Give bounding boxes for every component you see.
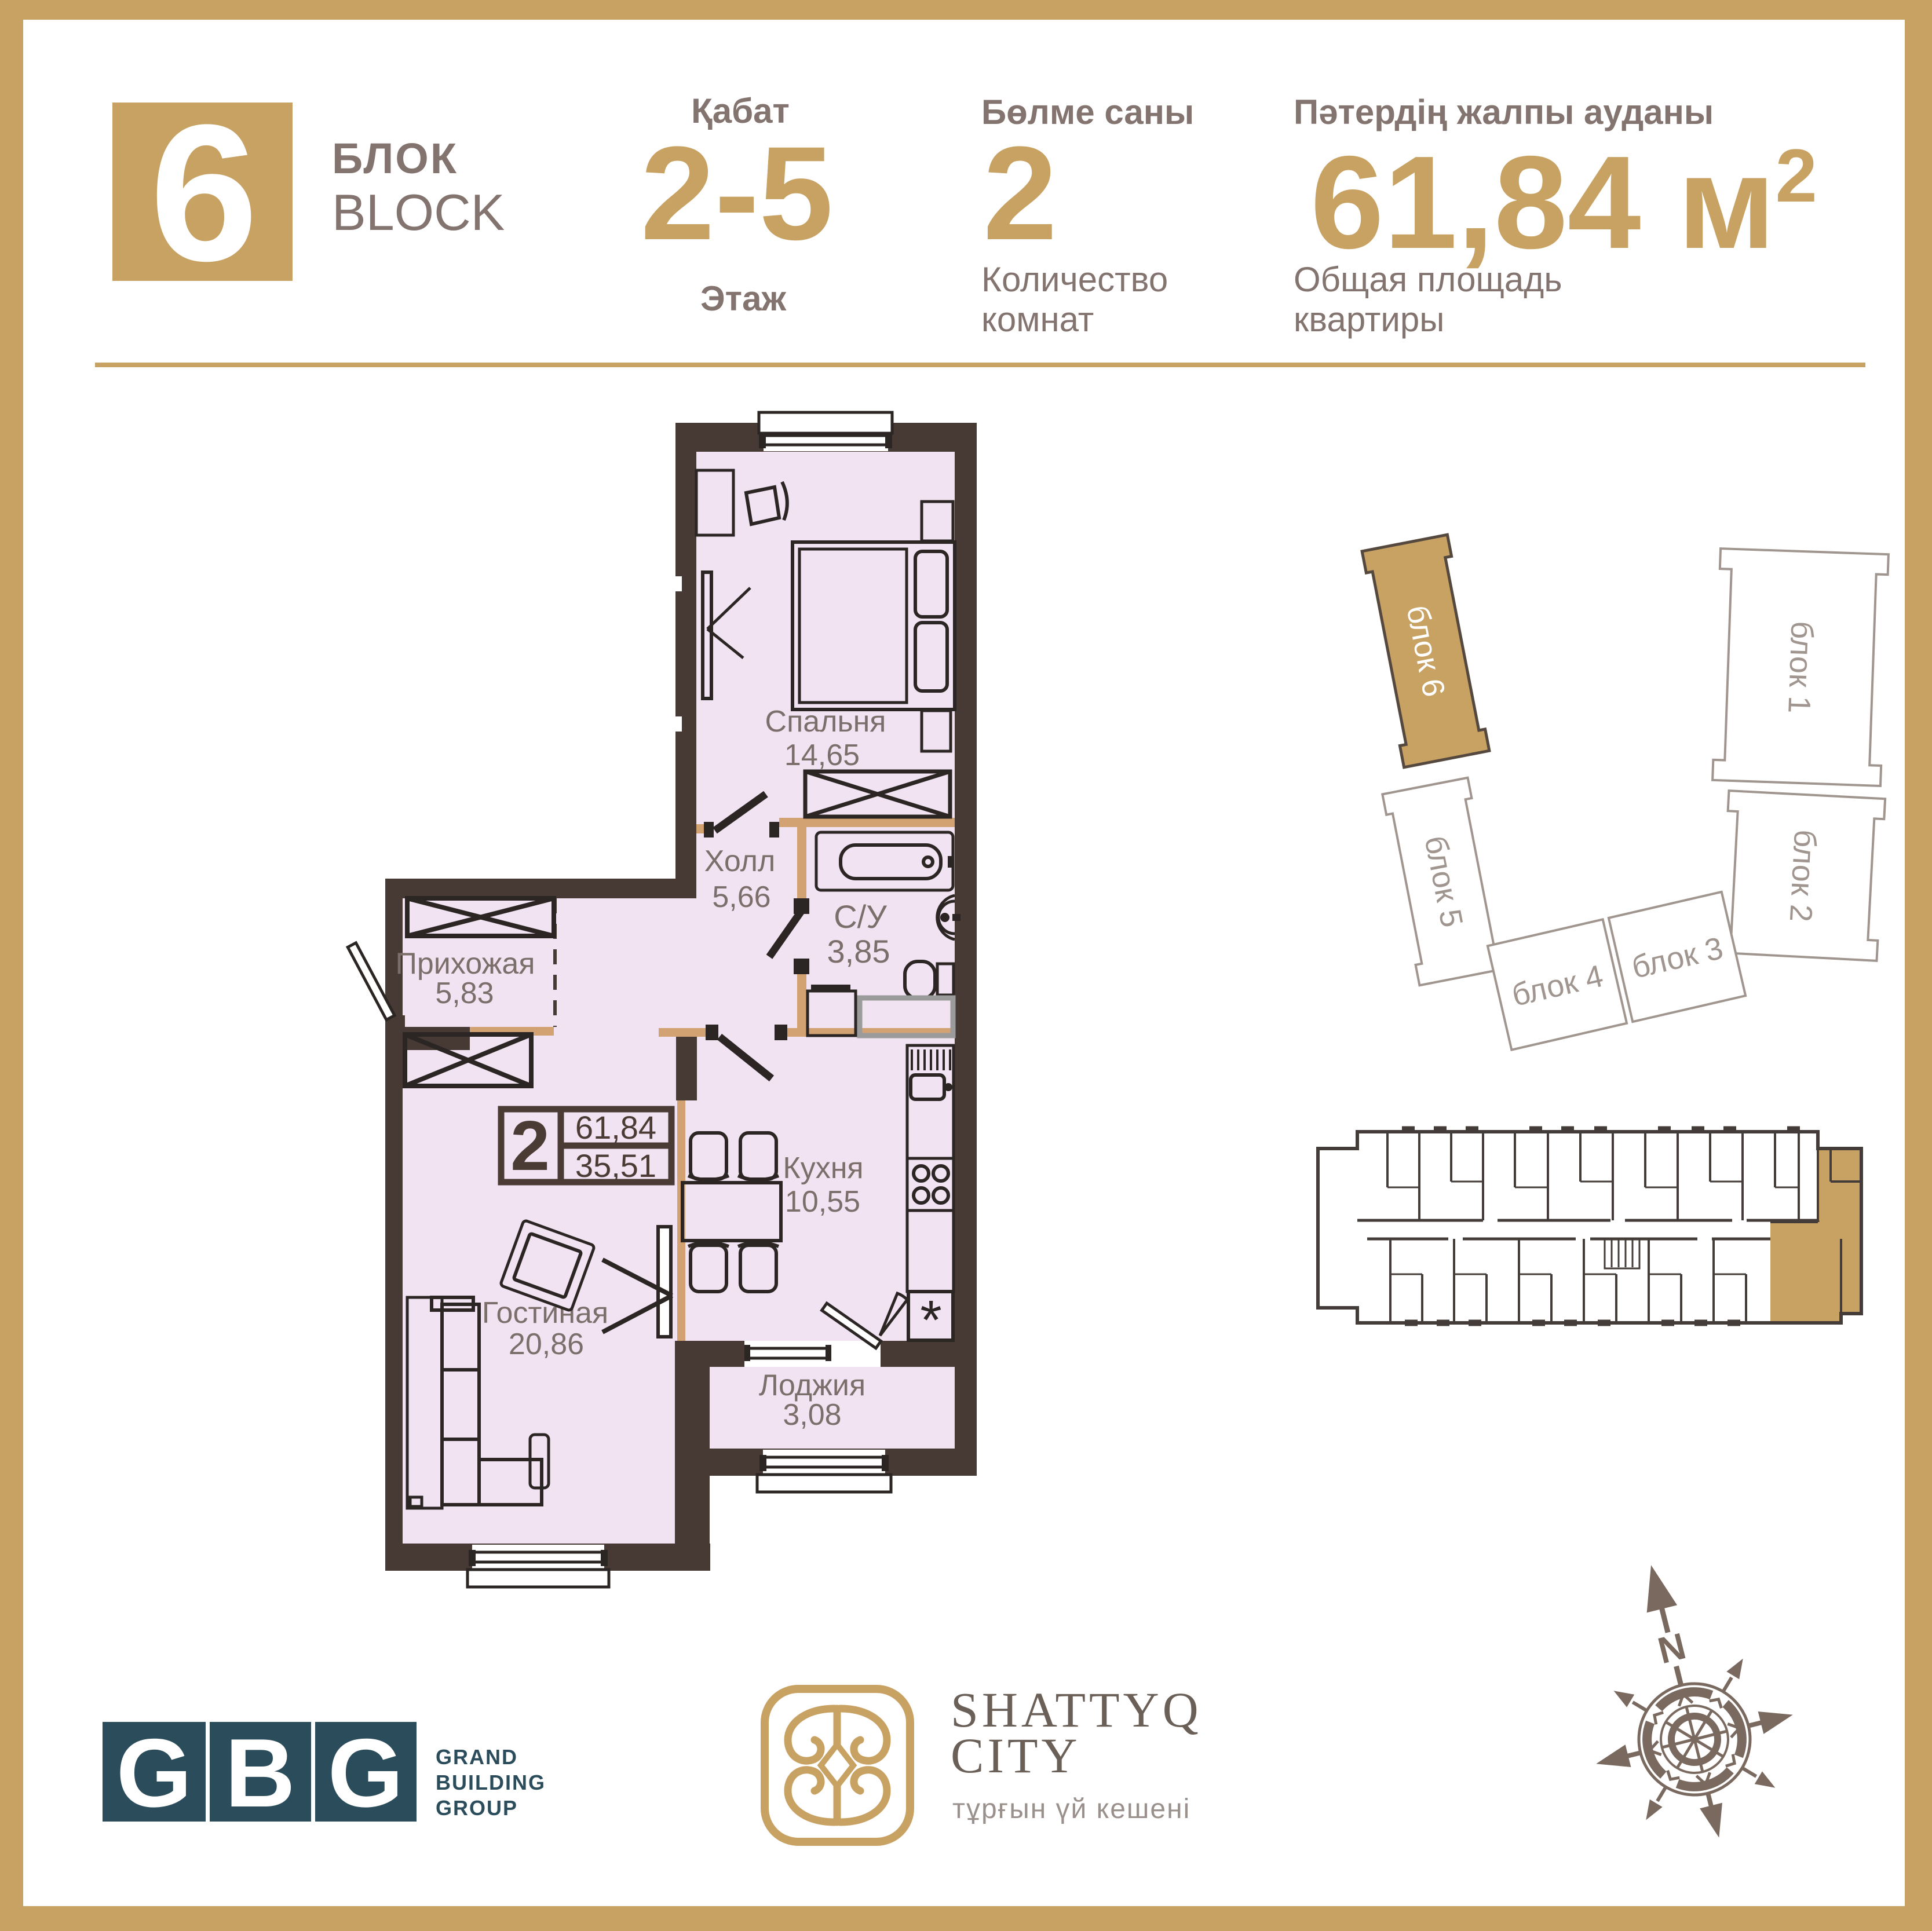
svg-text:20,86: 20,86 [509,1327,584,1361]
svg-text:2-5: 2-5 [641,119,833,268]
svg-text:BUILDING: BUILDING [436,1771,546,1794]
svg-text:С/У: С/У [834,898,887,935]
svg-text:GROUP: GROUP [436,1796,518,1820]
svg-text:Общая площадь: Общая площадь [1294,260,1562,299]
svg-text:Холл: Холл [704,844,776,878]
svg-text:CITY: CITY [951,1728,1081,1783]
svg-text:10,55: 10,55 [785,1185,860,1219]
svg-text:BLOCK: BLOCK [332,184,505,241]
svg-text:61,84 м2: 61,84 м2 [1310,129,1817,276]
svg-text:2: 2 [510,1106,550,1185]
svg-text:5,83: 5,83 [435,977,494,1010]
svg-text:Этаж: Этаж [700,279,787,318]
svg-text:блок 1: блок 1 [1781,620,1820,714]
svg-text:блок 2: блок 2 [1783,829,1823,923]
svg-text:2: 2 [983,119,1057,268]
svg-text:Лоджия: Лоджия [759,1369,865,1402]
svg-text:*: * [920,1289,941,1351]
svg-text:G: G [328,1718,404,1827]
svg-text:Кухня: Кухня [783,1151,863,1185]
svg-text:35,51: 35,51 [575,1147,656,1184]
svg-text:14,65: 14,65 [784,738,860,772]
svg-text:3,85: 3,85 [827,933,890,970]
svg-text:БЛОК: БЛОК [332,134,458,182]
svg-text:G: G [116,1718,192,1827]
svg-text:комнат: комнат [981,300,1094,339]
svg-text:Пәтердің жалпы ауданы: Пәтердің жалпы ауданы [1294,93,1714,131]
svg-text:GRAND: GRAND [436,1745,518,1769]
svg-text:5,66: 5,66 [712,880,770,914]
svg-text:тұрғын үй кешені: тұрғын үй кешені [952,1794,1190,1824]
svg-text:N: N [1654,1625,1690,1672]
svg-text:B: B [225,1718,295,1827]
svg-text:Прихожая: Прихожая [396,947,535,981]
svg-text:6: 6 [150,85,258,302]
svg-text:3,08: 3,08 [783,1398,841,1432]
svg-text:61,84: 61,84 [575,1109,656,1146]
svg-text:Количество: Количество [981,260,1168,299]
svg-text:квартиры: квартиры [1294,300,1444,339]
